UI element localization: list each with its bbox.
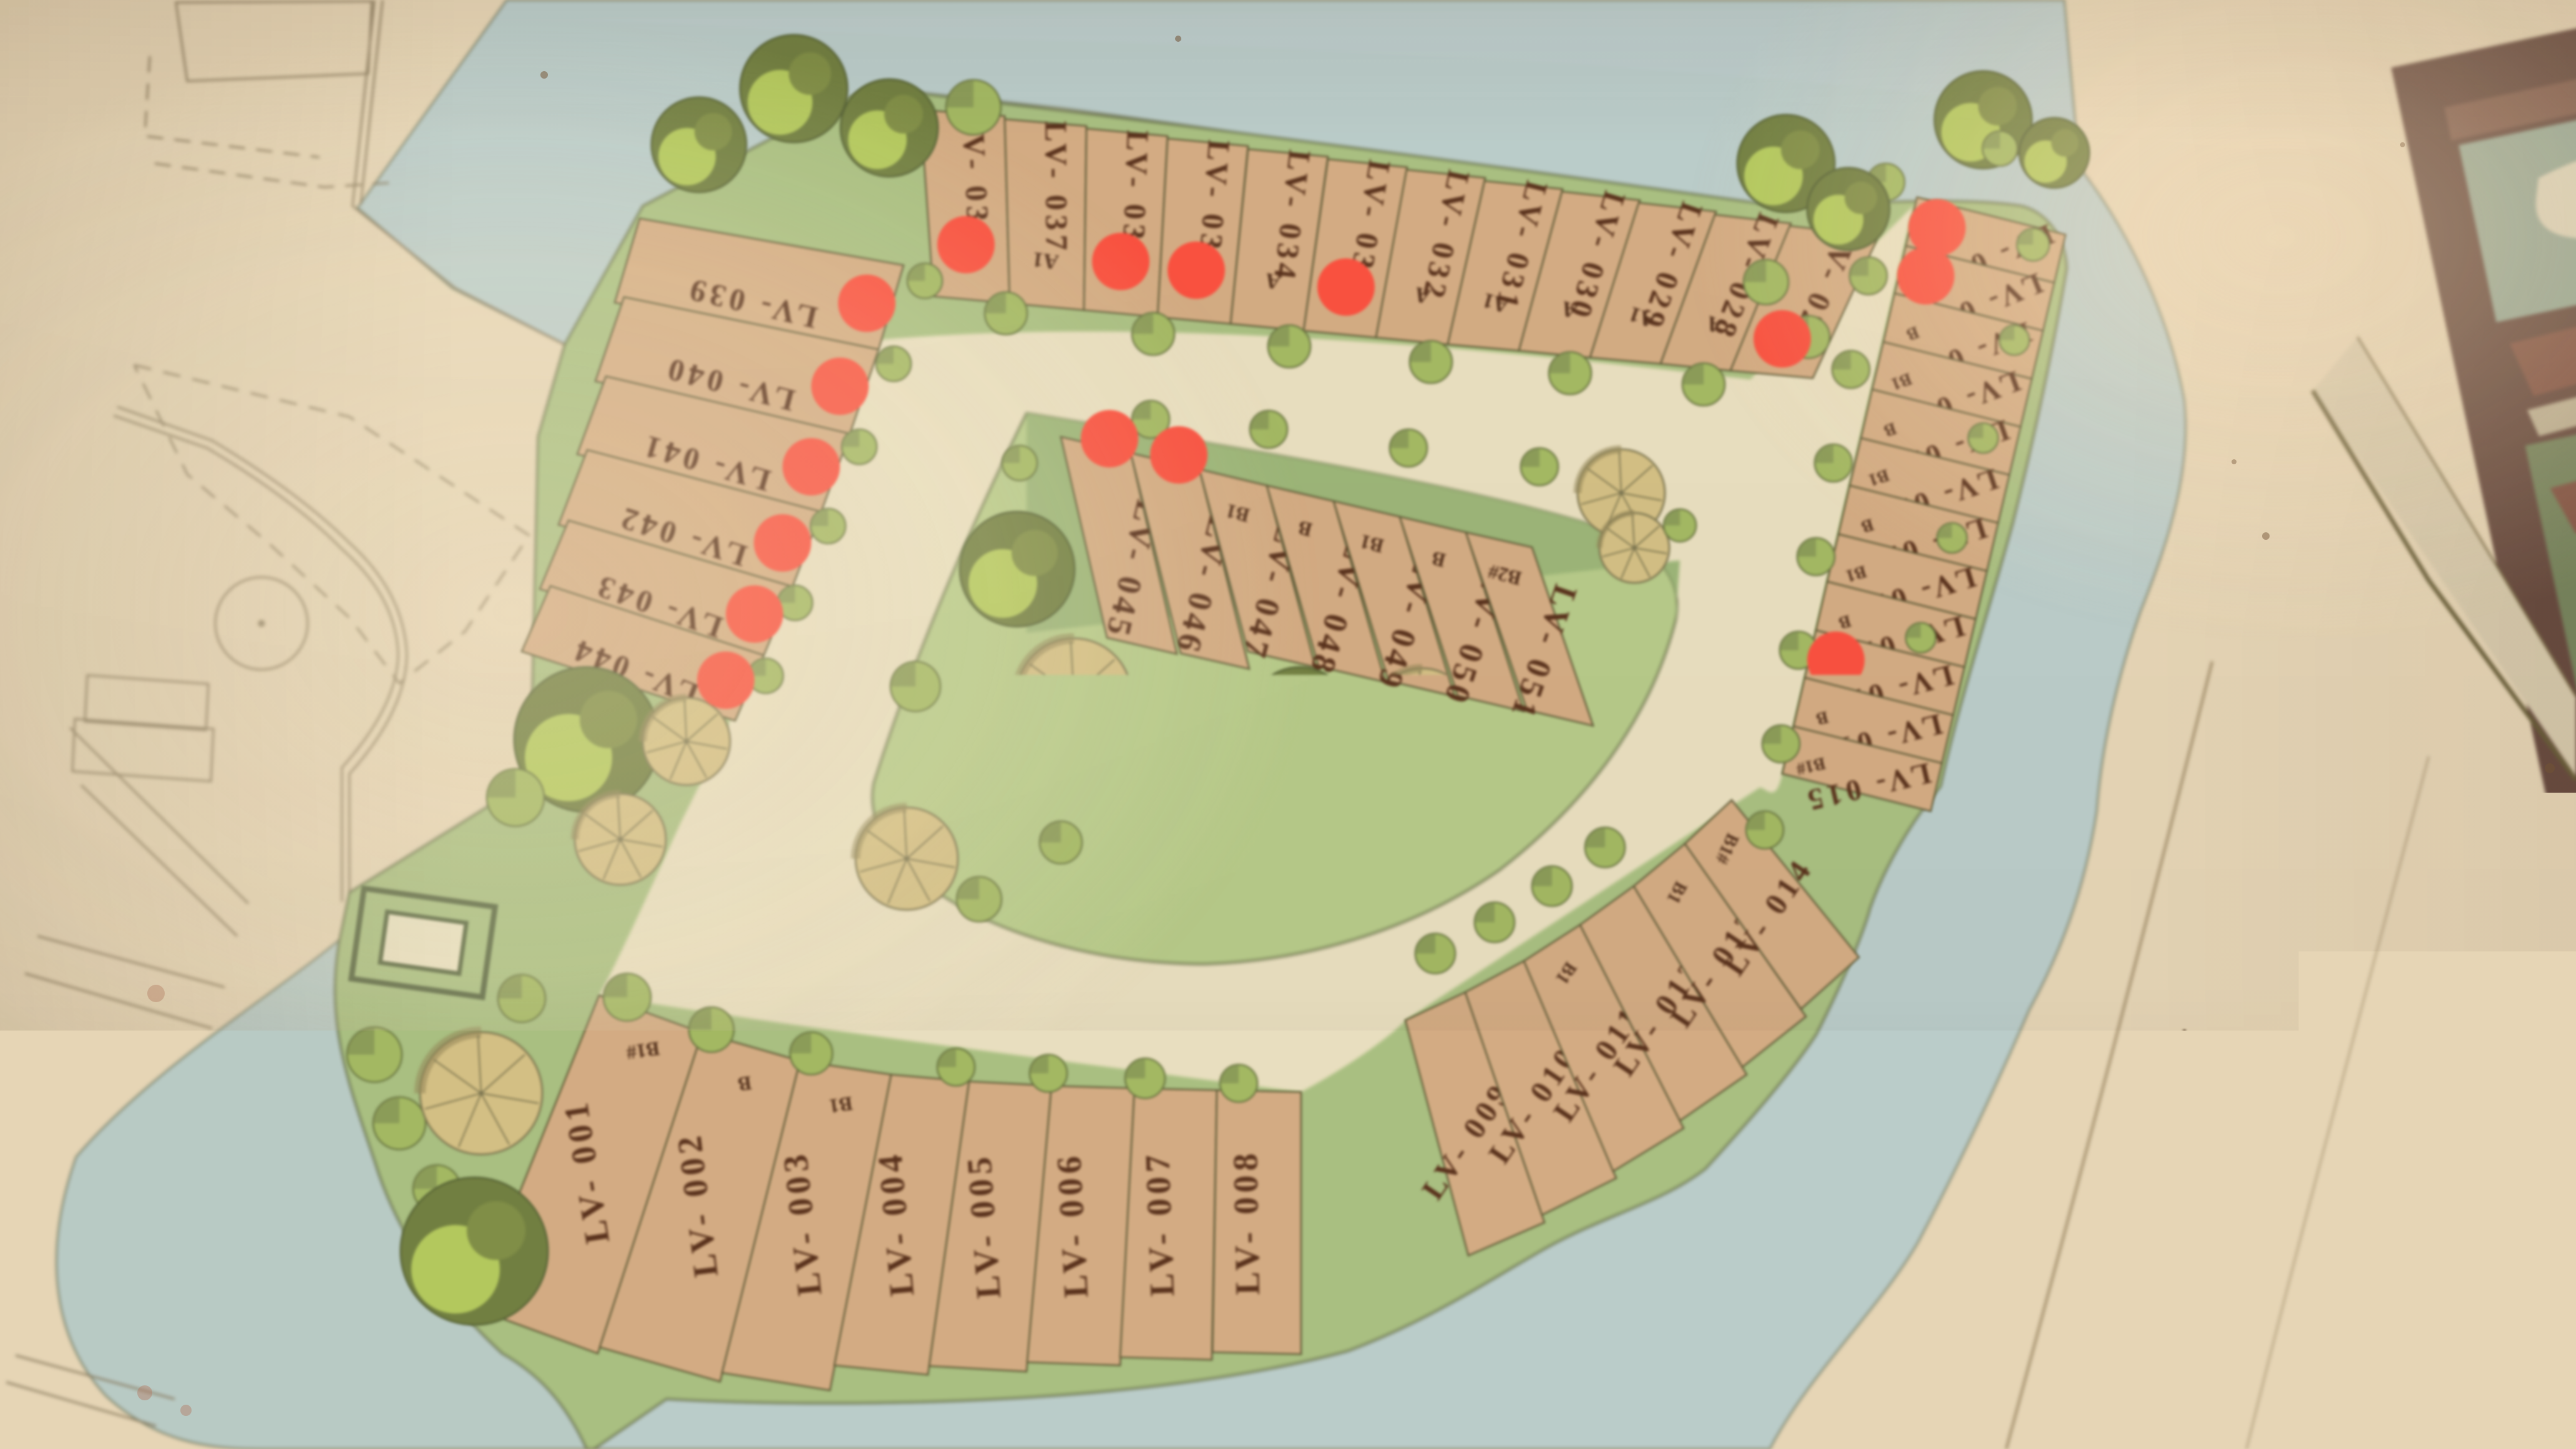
svg-text:PropCafe.Net: PropCafe.Net — [2416, 1391, 2557, 1417]
